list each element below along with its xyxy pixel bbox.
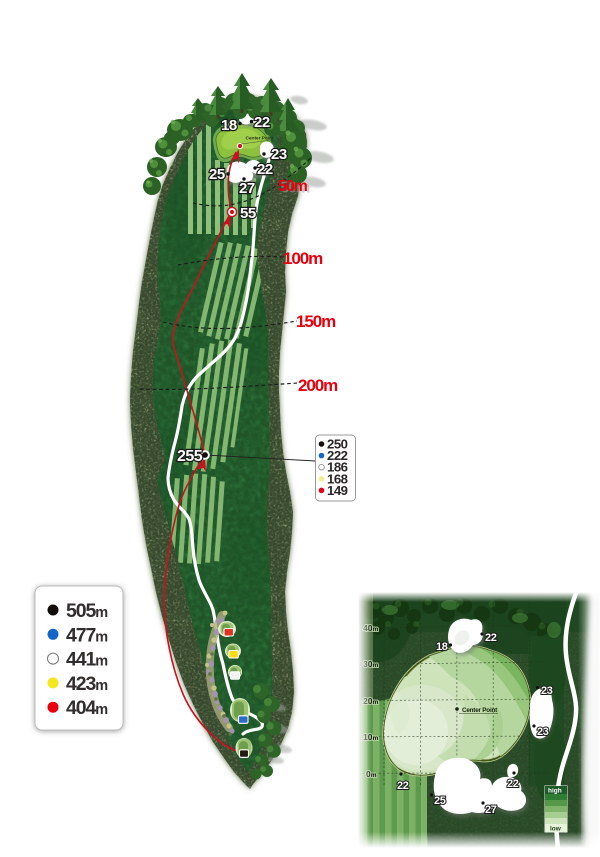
svg-text:100m: 100m bbox=[283, 249, 323, 268]
svg-text:Center Point: Center Point bbox=[246, 136, 274, 142]
svg-text:23: 23 bbox=[541, 685, 553, 697]
svg-text:255: 255 bbox=[177, 448, 203, 465]
svg-text:22: 22 bbox=[507, 778, 519, 790]
svg-text:50m: 50m bbox=[278, 178, 308, 195]
svg-text:22: 22 bbox=[485, 632, 497, 644]
svg-text:18: 18 bbox=[221, 117, 237, 134]
svg-text:149: 149 bbox=[327, 483, 348, 498]
svg-text:22: 22 bbox=[397, 780, 409, 792]
svg-text:22: 22 bbox=[257, 161, 273, 178]
svg-text:18: 18 bbox=[436, 641, 448, 653]
svg-text:150m: 150m bbox=[296, 312, 336, 331]
svg-text:27: 27 bbox=[485, 804, 497, 816]
svg-text:27: 27 bbox=[239, 180, 255, 197]
svg-text:25: 25 bbox=[209, 166, 225, 183]
svg-text:200m: 200m bbox=[298, 376, 338, 395]
svg-text:low: low bbox=[550, 826, 562, 833]
svg-text:23: 23 bbox=[271, 146, 287, 163]
svg-text:55: 55 bbox=[240, 205, 256, 222]
svg-text:25: 25 bbox=[434, 795, 446, 807]
svg-text:Center Point: Center Point bbox=[462, 707, 498, 714]
svg-text:22: 22 bbox=[254, 114, 270, 131]
svg-text:23: 23 bbox=[537, 726, 549, 738]
svg-text:high: high bbox=[548, 788, 562, 795]
